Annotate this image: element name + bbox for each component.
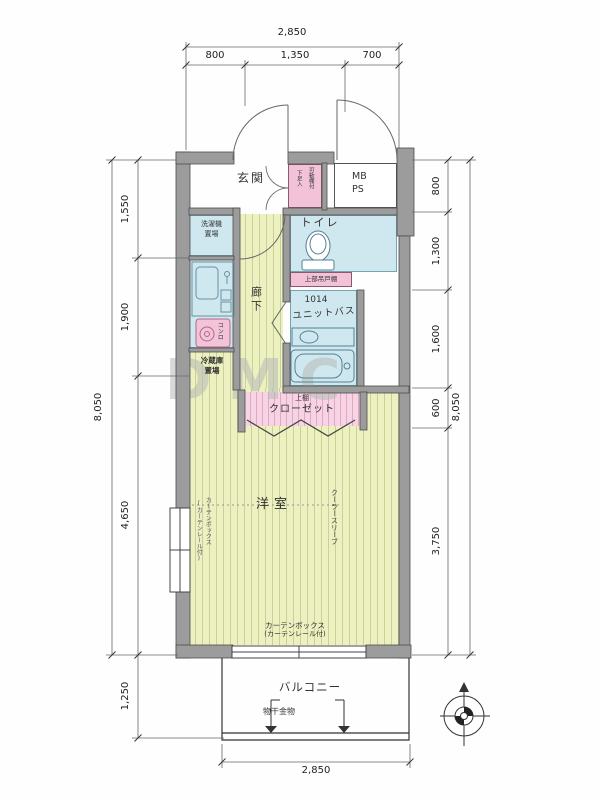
dim-top-seg2: 1,350 xyxy=(270,51,320,62)
balcony-window-icon xyxy=(232,646,366,658)
ps-label: PS xyxy=(352,185,364,195)
bathtub-icon xyxy=(291,350,354,382)
dim-right-seg4: 600 xyxy=(432,386,444,430)
kitchen-sink-icon xyxy=(192,262,234,316)
side-window-note-col2: (カーテンレール付) xyxy=(195,500,201,584)
laundry-label-line1: 洗濯機 xyxy=(190,221,233,228)
dim-right-seg5: 3,750 xyxy=(432,519,444,563)
fridge-label-line2: 置場 xyxy=(190,367,234,375)
drying-fixture-label: 物干金物 xyxy=(263,708,295,716)
laundry-hook-icons xyxy=(265,700,350,733)
dim-top-seg3: 700 xyxy=(347,51,397,62)
dim-right-seg2: 1,300 xyxy=(432,229,444,273)
side-window-icon xyxy=(170,508,190,592)
dim-left-seg3: 4,650 xyxy=(121,493,133,537)
bath-size-label: 1014 xyxy=(296,296,336,305)
dim-right-seg3: 1,600 xyxy=(432,317,444,361)
hanging-cabinet-label: 上部吊戸棚 xyxy=(291,276,351,283)
closet-label: クローゼット xyxy=(262,405,342,416)
bath-folding-door-icon xyxy=(272,302,286,344)
mb-ps-door-icon xyxy=(337,100,397,160)
corridor-label: 廊下 xyxy=(250,286,262,334)
balcony-outline xyxy=(222,658,409,740)
genkan-label: 玄関 xyxy=(228,172,274,185)
balcony-label: バルコニー xyxy=(273,681,347,693)
washbasin-icon xyxy=(292,328,354,346)
main-room-label: 洋室 xyxy=(251,498,297,512)
stove-icon xyxy=(196,319,230,347)
entrance-door-icon xyxy=(233,105,288,160)
fridge-label-line1: 冷蔵庫 xyxy=(190,357,234,365)
dim-left-seg1: 1,550 xyxy=(121,187,133,231)
ac-sleeve-label: クーラースリーブ xyxy=(330,489,337,565)
laundry-label-line2: 置場 xyxy=(190,231,233,238)
toilet-icon xyxy=(302,231,334,270)
closet-folding-doors-icon xyxy=(247,420,355,436)
stove-label: コンロ xyxy=(216,322,222,346)
dim-left-seg2: 1,900 xyxy=(121,295,133,339)
dim-left-total: 8,050 xyxy=(94,385,106,429)
dim-right-total: 8,050 xyxy=(452,385,464,429)
dim-top-total: 2,850 xyxy=(262,28,322,39)
closet-shelf-label: 上棚 xyxy=(291,395,313,402)
corridor-door-icon xyxy=(240,214,285,259)
dim-bottom-total: 2,850 xyxy=(286,766,346,777)
mb-label: MB xyxy=(352,172,367,182)
dim-left-seg4: 1,250 xyxy=(121,674,133,718)
curtain-box-label-line2: (カーテンレール付) xyxy=(247,631,343,638)
curtain-box-label-line1: カーテンボックス xyxy=(249,622,341,630)
dim-top-seg1: 800 xyxy=(190,51,240,62)
dim-right-seg1: 800 xyxy=(432,164,444,208)
toilet-label: トイレ xyxy=(294,217,346,229)
floorplan-page: DMC xyxy=(0,0,600,800)
side-window-note-col1: カーテンボックス xyxy=(204,497,210,587)
shoe-cabinet-label-col1: 可動棚付 xyxy=(307,167,313,207)
shoe-cabinet-label-col2: 下足入 xyxy=(295,170,301,204)
compass-icon xyxy=(440,682,490,746)
